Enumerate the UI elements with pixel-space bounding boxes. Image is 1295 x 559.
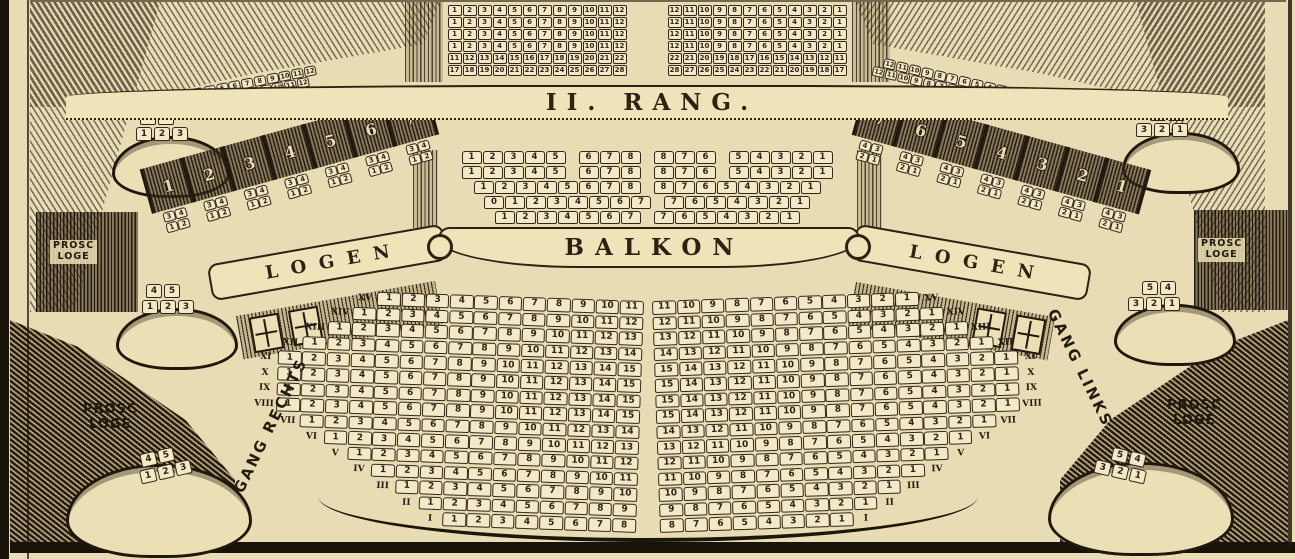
seat: 2 <box>177 217 191 230</box>
seat: 9 <box>497 343 521 357</box>
seat: 13 <box>568 377 592 391</box>
seat: 28 <box>613 65 627 76</box>
seat: 5 <box>823 310 847 324</box>
seat: 5 <box>733 516 757 530</box>
seat: 11 <box>570 330 594 344</box>
seat: 4 <box>738 181 758 194</box>
seat: 2 <box>871 293 895 307</box>
seat: 8 <box>824 357 848 371</box>
seat: 5 <box>898 370 922 384</box>
seat: 1 <box>995 382 1019 396</box>
seat: 11 <box>520 359 544 373</box>
seat: 8 <box>553 17 567 28</box>
seat: 12 <box>668 41 682 52</box>
prosc-loge-balcony <box>1114 304 1236 366</box>
seat: 6 <box>827 435 851 449</box>
seat: 6 <box>758 5 772 16</box>
seat: 7 <box>538 17 552 28</box>
seat: 7 <box>803 435 827 449</box>
seat: 5 <box>589 196 609 209</box>
seat: 12 <box>703 345 727 359</box>
seat: 3 <box>372 432 396 446</box>
seat: 4 <box>350 369 374 383</box>
seat: 4 <box>396 433 420 447</box>
seat: 12 <box>591 440 615 454</box>
prosc-seats-mid-right: 54 321 <box>1118 280 1190 312</box>
seat: 12 <box>613 17 627 28</box>
seat: 4 <box>146 284 162 298</box>
seat: 3 <box>896 323 920 337</box>
seat: 2 <box>970 352 994 366</box>
seat: 7 <box>600 166 620 179</box>
seat: 8 <box>541 469 565 483</box>
seat: 14 <box>493 53 507 64</box>
loge-number: 1 <box>1114 175 1130 196</box>
seat: 12 <box>544 391 568 405</box>
seat: 10 <box>726 329 750 343</box>
seat: 5 <box>421 434 445 448</box>
seat: 5 <box>508 29 522 40</box>
seat: 2 <box>372 448 396 462</box>
seat: 1 <box>833 29 847 40</box>
seat: 1 <box>867 153 881 166</box>
loge-seat-pair: 4321 <box>976 173 1006 201</box>
seat: 2 <box>463 41 477 52</box>
seat: 6 <box>421 418 445 432</box>
seat: 9 <box>565 470 589 484</box>
seat: 8 <box>547 298 571 312</box>
seat: 22 <box>523 65 537 76</box>
seat: 5 <box>474 295 498 309</box>
seat: 3 <box>900 432 924 446</box>
seat: 12 <box>668 17 682 28</box>
seat: 12 <box>619 316 643 330</box>
seat: 1 <box>474 181 494 194</box>
parquet-left-block: XV1234567891011XIV123456789101112XIII123… <box>244 286 644 533</box>
seat: 4 <box>351 353 375 367</box>
rang-seat-block-right: 1211109876543211211109876543211211109876… <box>664 4 850 76</box>
seat: 9 <box>707 470 731 484</box>
seat: 2 <box>971 367 995 381</box>
seat: 4 <box>828 466 852 480</box>
seat: 1 <box>813 166 833 179</box>
seat: 1 <box>920 307 944 321</box>
row-numeral: V <box>949 448 973 459</box>
seat: 10 <box>589 471 613 485</box>
seat: 3 <box>172 127 188 141</box>
seat: 13 <box>619 331 643 345</box>
seat: 2 <box>218 206 232 219</box>
seat: 8 <box>707 486 731 500</box>
seat: 2 <box>324 415 348 429</box>
seat: 2 <box>853 481 877 495</box>
seat: 5 <box>508 5 522 16</box>
seat: 5 <box>375 354 399 368</box>
seat: 8 <box>621 166 641 179</box>
seat: 12 <box>613 29 627 40</box>
seat: 1 <box>442 513 466 527</box>
seat: 1 <box>945 321 969 335</box>
row-numeral: XII <box>993 337 1017 348</box>
seat: 3 <box>467 498 491 512</box>
seat: 13 <box>568 392 592 406</box>
seat: 1 <box>901 463 925 477</box>
seat-row: 123456789101112 <box>444 40 630 52</box>
seat: 6 <box>758 41 772 52</box>
seat: 19 <box>803 65 817 76</box>
seat: 4 <box>847 309 871 323</box>
seat: 13 <box>567 408 591 422</box>
seat: 24 <box>553 65 567 76</box>
seat: 3 <box>871 308 895 322</box>
seat: 3 <box>547 196 567 209</box>
seat: 5 <box>899 401 923 415</box>
seat: 6 <box>756 484 780 498</box>
row-numeral: IV <box>925 464 949 475</box>
seat: 25 <box>568 65 582 76</box>
seat: 3 <box>516 181 536 194</box>
seat: 3 <box>771 166 791 179</box>
seat: 11 <box>652 300 676 314</box>
seat: 3 <box>946 352 970 366</box>
seat: 1 <box>877 480 901 494</box>
seat: 8 <box>446 403 470 417</box>
seat: 2 <box>971 383 995 397</box>
seat: 3 <box>325 399 349 413</box>
seat: 3 <box>478 17 492 28</box>
seat: 9 <box>801 373 825 387</box>
seat: 3 <box>1136 123 1152 137</box>
seat: 4 <box>872 324 896 338</box>
seat: 7 <box>423 371 447 385</box>
seat: 9 <box>589 486 613 500</box>
loge-number: 6 <box>363 119 379 140</box>
seat: 7 <box>517 468 541 482</box>
seat: 4 <box>876 433 900 447</box>
seat: 3 <box>803 17 817 28</box>
seat: 3 <box>759 181 779 194</box>
theater-seating-plan: 1234567891011121234567891011121234567891… <box>0 0 1295 559</box>
seat: 5 <box>558 181 578 194</box>
row-numeral: XV <box>919 293 943 304</box>
loge-number: 5 <box>954 131 970 152</box>
seat: 3 <box>504 151 524 164</box>
seat: 6 <box>803 451 827 465</box>
seat: 11 <box>545 344 569 358</box>
seat: 17 <box>833 65 847 76</box>
seat: 9 <box>659 503 683 517</box>
row-numeral: VI <box>972 431 996 442</box>
seat: 7 <box>827 419 851 433</box>
seat: 9 <box>731 454 755 468</box>
seat: 5 <box>773 29 787 40</box>
seat: 1 <box>1069 210 1083 223</box>
seat: 4 <box>788 29 802 40</box>
seat: 1 <box>347 447 371 461</box>
seat: 6 <box>774 296 798 310</box>
balkon-seat-block: 1234567887654321123456788765432112345678… <box>436 150 858 225</box>
seat: 13 <box>681 424 705 438</box>
seat: 7 <box>422 387 446 401</box>
seat: 5 <box>508 41 522 52</box>
seat: 7 <box>664 196 684 209</box>
seat: 9 <box>518 437 542 451</box>
seat: 1 <box>854 496 878 510</box>
seat: 7 <box>774 312 798 326</box>
seat: 5 <box>706 196 726 209</box>
seat: 10 <box>777 390 801 404</box>
seat: 10 <box>495 390 519 404</box>
seat: 14 <box>593 377 617 391</box>
seat: 6 <box>579 181 599 194</box>
seat: 12 <box>668 5 682 16</box>
seat: 3 <box>1093 459 1112 476</box>
seat: 11 <box>543 422 567 436</box>
seat: 10 <box>730 438 754 452</box>
seat: 11 <box>729 422 753 436</box>
seat: 6 <box>708 517 732 531</box>
seat: 10 <box>751 344 775 358</box>
seat-row: 123456789101112 <box>444 4 630 16</box>
seat: 2 <box>483 166 503 179</box>
seat: 11 <box>598 5 612 16</box>
seat: 2 <box>792 166 812 179</box>
seat: 9 <box>522 328 546 342</box>
seat: 11 <box>752 375 776 389</box>
seat: 6 <box>469 451 493 465</box>
seat: 1 <box>972 414 996 428</box>
seat: 7 <box>469 435 493 449</box>
seat: 10 <box>583 29 597 40</box>
seat: 2 <box>526 196 546 209</box>
seat: 6 <box>696 181 716 194</box>
seat: 15 <box>655 363 679 377</box>
seat: 4 <box>491 499 515 513</box>
seat: 5 <box>492 483 516 497</box>
seat: 1 <box>780 211 800 224</box>
seat: 11 <box>682 455 706 469</box>
seat: 3 <box>781 514 805 528</box>
seat: 7 <box>654 211 674 224</box>
seat: 3 <box>325 384 349 398</box>
seat-row: 121110987654321 <box>664 16 850 28</box>
seat: 9 <box>713 17 727 28</box>
seat: 7 <box>708 501 732 515</box>
seat: 10 <box>777 405 801 419</box>
seat: 1 <box>136 127 152 141</box>
parquet-right-block: 1110987654321XV121110987654321XIV1312111… <box>652 286 1052 533</box>
seat: 8 <box>728 41 742 52</box>
seat: 8 <box>553 5 567 16</box>
seat: 4 <box>921 353 945 367</box>
seat: 8 <box>621 181 641 194</box>
seat: 12 <box>544 376 568 390</box>
loge-seat-pair: 4321 <box>1057 195 1087 223</box>
seat: 27 <box>598 65 612 76</box>
seat: 19 <box>568 53 582 64</box>
seat: 12 <box>682 440 706 454</box>
seat: 2 <box>900 448 924 462</box>
seat: 9 <box>683 486 707 500</box>
seat: 3 <box>396 448 420 462</box>
loge-seat-pair: 3412 <box>283 173 313 201</box>
seat: 4 <box>750 151 770 164</box>
logen-banner-right-label: LOGEN <box>895 239 1048 286</box>
seat: 6 <box>823 326 847 340</box>
seat: 8 <box>802 420 826 434</box>
seat: 9 <box>571 299 595 313</box>
row-numeral: XIV <box>944 307 968 318</box>
seat: 8 <box>775 327 799 341</box>
seat: 8 <box>565 486 589 500</box>
seat: 10 <box>571 314 595 328</box>
left-border-line <box>27 0 29 559</box>
seat: 7 <box>538 29 552 40</box>
seat: 3 <box>852 465 876 479</box>
seat: 26 <box>698 65 712 76</box>
seat: 15 <box>656 394 680 408</box>
seat: 12 <box>613 5 627 16</box>
seat: 10 <box>683 471 707 485</box>
row-numeral: XV <box>353 293 377 304</box>
seat: 5 <box>804 467 828 481</box>
seat: 4 <box>804 482 828 496</box>
seat: 15 <box>616 394 640 408</box>
seat: 3 <box>846 294 870 308</box>
seat-row: 111213141516171819202122 <box>444 52 630 64</box>
seat: 10 <box>698 5 712 16</box>
seat: 3 <box>876 448 900 462</box>
seat: 15 <box>618 363 642 377</box>
seat: 7 <box>849 356 873 370</box>
seat: 9 <box>613 503 637 517</box>
seat: 5 <box>828 450 852 464</box>
seat: 6 <box>424 340 448 354</box>
seat: 7 <box>538 5 552 16</box>
seat: 10 <box>495 405 519 419</box>
seat: 3 <box>426 294 450 308</box>
seat: 7 <box>600 181 620 194</box>
seat: 3 <box>401 308 425 322</box>
seat: 9 <box>713 41 727 52</box>
seat: 7 <box>473 326 497 340</box>
seat: 23 <box>538 65 552 76</box>
seat-row: 222120191817161514131211 <box>664 52 850 64</box>
seat: 19 <box>478 65 492 76</box>
seat: 7 <box>564 501 588 515</box>
seat: 14 <box>618 347 642 361</box>
seat: 1 <box>925 447 949 461</box>
seat: 5 <box>397 417 421 431</box>
seat: 9 <box>726 313 750 327</box>
seat: 6 <box>564 517 588 531</box>
seat: 11 <box>833 53 847 64</box>
seat: 7 <box>732 485 756 499</box>
seat: 12 <box>463 53 477 64</box>
seat: 9 <box>471 389 495 403</box>
seat: 26 <box>583 65 597 76</box>
seat: 8 <box>731 469 755 483</box>
seat: 10 <box>677 299 701 313</box>
seat: 8 <box>448 357 472 371</box>
seat: 11 <box>706 439 730 453</box>
seat: 2 <box>463 5 477 16</box>
seat: 1 <box>989 187 1003 200</box>
seat: 6 <box>780 467 804 481</box>
seat: 5 <box>374 370 398 384</box>
seat: 18 <box>553 53 567 64</box>
seat: 10 <box>542 438 566 452</box>
seat: 4 <box>373 416 397 430</box>
seat: 8 <box>800 342 824 356</box>
seat: 9 <box>775 343 799 357</box>
seat: 1 <box>505 196 525 209</box>
row-numeral: I <box>854 513 878 524</box>
seat: 8 <box>825 372 849 386</box>
seat: 6 <box>875 402 899 416</box>
seat: 9 <box>568 29 582 40</box>
seat: 7 <box>422 403 446 417</box>
seat: 23 <box>743 65 757 76</box>
seat: 3 <box>326 368 350 382</box>
seat: 2 <box>818 5 832 16</box>
seat: 5 <box>897 354 921 368</box>
seat: 2 <box>395 464 419 478</box>
seat: 2 <box>463 29 477 40</box>
seat: 12 <box>705 423 729 437</box>
loge-seat-pair: 3412 <box>242 184 272 212</box>
seat: 10 <box>595 299 619 313</box>
seat: 7 <box>850 403 874 417</box>
seat: 14 <box>788 53 802 64</box>
seat: 1 <box>1128 467 1147 484</box>
seat: 13 <box>594 346 618 360</box>
seat: 2 <box>896 307 920 321</box>
seat: 12 <box>668 29 682 40</box>
seat: 5 <box>729 151 749 164</box>
seat-group: 12345 <box>461 165 566 179</box>
seat: 8 <box>447 372 471 386</box>
seat: 19 <box>713 53 727 64</box>
loge-number: 2 <box>201 164 217 185</box>
rang-banner-label: II. RANG. <box>536 89 758 116</box>
seat: 5 <box>516 499 540 513</box>
seat: 15 <box>508 53 522 64</box>
seat: 10 <box>776 358 800 372</box>
seat-group: 12345678 <box>473 180 641 194</box>
seat: 12 <box>818 53 832 64</box>
seat: 4 <box>493 41 507 52</box>
seat: 7 <box>675 166 695 179</box>
seat: 1 <box>969 336 993 350</box>
seat: 4 <box>899 416 923 430</box>
seat: 5 <box>756 499 780 513</box>
seat: 12 <box>594 331 618 345</box>
seat: 20 <box>698 53 712 64</box>
prosc-loge-label-upper-left: PROSC LOGE <box>50 240 97 264</box>
seat: 6 <box>873 355 897 369</box>
left-page-bar <box>0 0 9 559</box>
seat: 9 <box>713 29 727 40</box>
seat: 12 <box>614 456 638 470</box>
seat: 6 <box>696 166 716 179</box>
seat: 10 <box>706 454 730 468</box>
seat: 9 <box>750 328 774 342</box>
seat: 4 <box>420 449 444 463</box>
seat: 1 <box>395 480 419 494</box>
seat: 2 <box>829 497 853 511</box>
seat: 12 <box>678 331 702 345</box>
